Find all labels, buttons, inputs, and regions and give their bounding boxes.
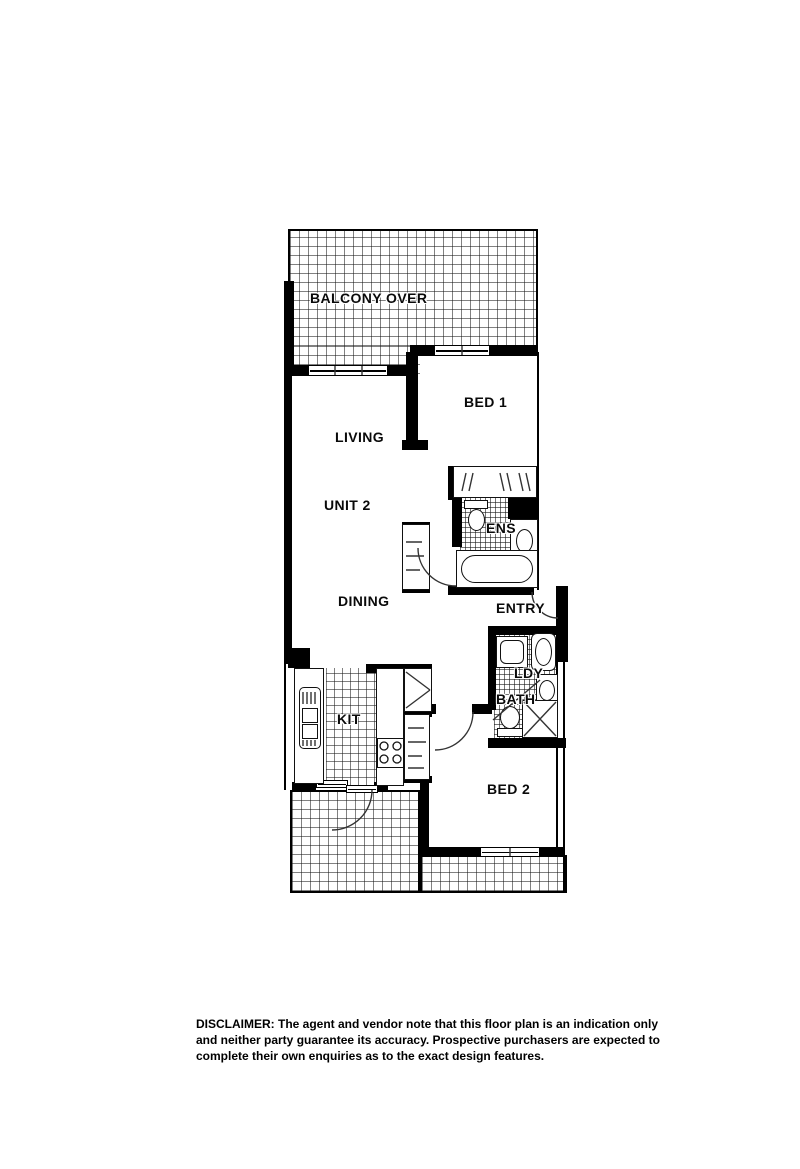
floor-plan-drawing: BALCONY OVER BED 1 LIVING UNIT 2 DINING … [0, 0, 800, 1169]
room-label-bed2: BED 2 [487, 782, 530, 796]
hall-cupboard-icon [402, 524, 430, 590]
room-label-bed1: BED 1 [464, 395, 507, 409]
kitchen-bench-right [376, 668, 404, 786]
disclaimer-text: DISCLAIMER: The agent and vendor note th… [196, 1016, 676, 1064]
room-label-living: LIVING [335, 430, 384, 444]
window-bed1 [434, 345, 490, 356]
disclaimer-line-1: DISCLAIMER: The agent and vendor note th… [196, 1016, 676, 1032]
wall-bed2-bottom-right [540, 847, 564, 857]
window-bed2 [480, 847, 540, 857]
room-label-kit: KIT [337, 712, 361, 726]
detail-overlay [0, 0, 800, 1169]
disclaimer-line-3: complete their own enquiries as to the e… [196, 1048, 676, 1064]
linen-cupboard-icon [404, 714, 430, 780]
cooktop-icon [377, 738, 404, 768]
kitchen-floor-tiles [326, 668, 376, 786]
wall-east-outer-thin [563, 662, 565, 893]
basin-icon [539, 680, 555, 701]
toilet-icon [468, 509, 485, 531]
bathtub-icon [456, 550, 538, 588]
window-living [308, 365, 388, 376]
wall-divider-foot [402, 440, 428, 450]
terrace-left-area [290, 790, 420, 893]
floor-plan-page: BALCONY OVER BED 1 LIVING UNIT 2 DINING … [0, 0, 800, 1169]
room-label-dining: DINING [338, 594, 389, 608]
kitchen-sink-icon [302, 724, 318, 739]
room-label-balcony: BALCONY OVER [310, 291, 427, 305]
disclaimer-line-2: and neither party guarantee its accuracy… [196, 1032, 676, 1048]
toilet-icon [500, 706, 520, 729]
room-label-bath: BATH [496, 692, 535, 706]
wall-entry-right [556, 586, 568, 662]
washing-machine-icon [496, 636, 528, 668]
wall-ens-left [452, 497, 462, 547]
laundry-trough-icon [535, 638, 552, 666]
wall-balcony-left [284, 281, 294, 374]
wall-bath-left [488, 626, 496, 710]
wall-ens-duct [508, 497, 538, 519]
kitchen-sink-icon [302, 708, 318, 723]
unit-label: UNIT 2 [324, 498, 371, 512]
wall-bed2-top-right [472, 704, 492, 714]
door-swing-icon [435, 712, 473, 750]
terrace-bottom-area [420, 855, 567, 893]
pantry-icon [404, 668, 432, 712]
sliding-door-kitchen-b [346, 785, 378, 793]
toilet-icon [497, 728, 523, 737]
washing-machine-icon [500, 640, 524, 664]
wardrobe-icon [453, 466, 537, 498]
wall-bed2-bottom-left [424, 847, 480, 857]
wall-bath-bottom [488, 738, 566, 748]
room-label-ens: ENS [486, 521, 516, 535]
toilet-icon [464, 500, 488, 509]
wall-living-bed1-divider [406, 352, 418, 448]
room-label-ldy: LDY [514, 666, 543, 680]
wall-left-outer [284, 374, 292, 664]
wall-kitchen-left-thin [284, 664, 286, 790]
room-label-entry: ENTRY [496, 601, 545, 615]
wall-bed1-top-right [490, 345, 538, 356]
wall-dining-pier [288, 648, 310, 668]
balcony-area [288, 229, 538, 346]
bathtub-icon [461, 555, 533, 583]
